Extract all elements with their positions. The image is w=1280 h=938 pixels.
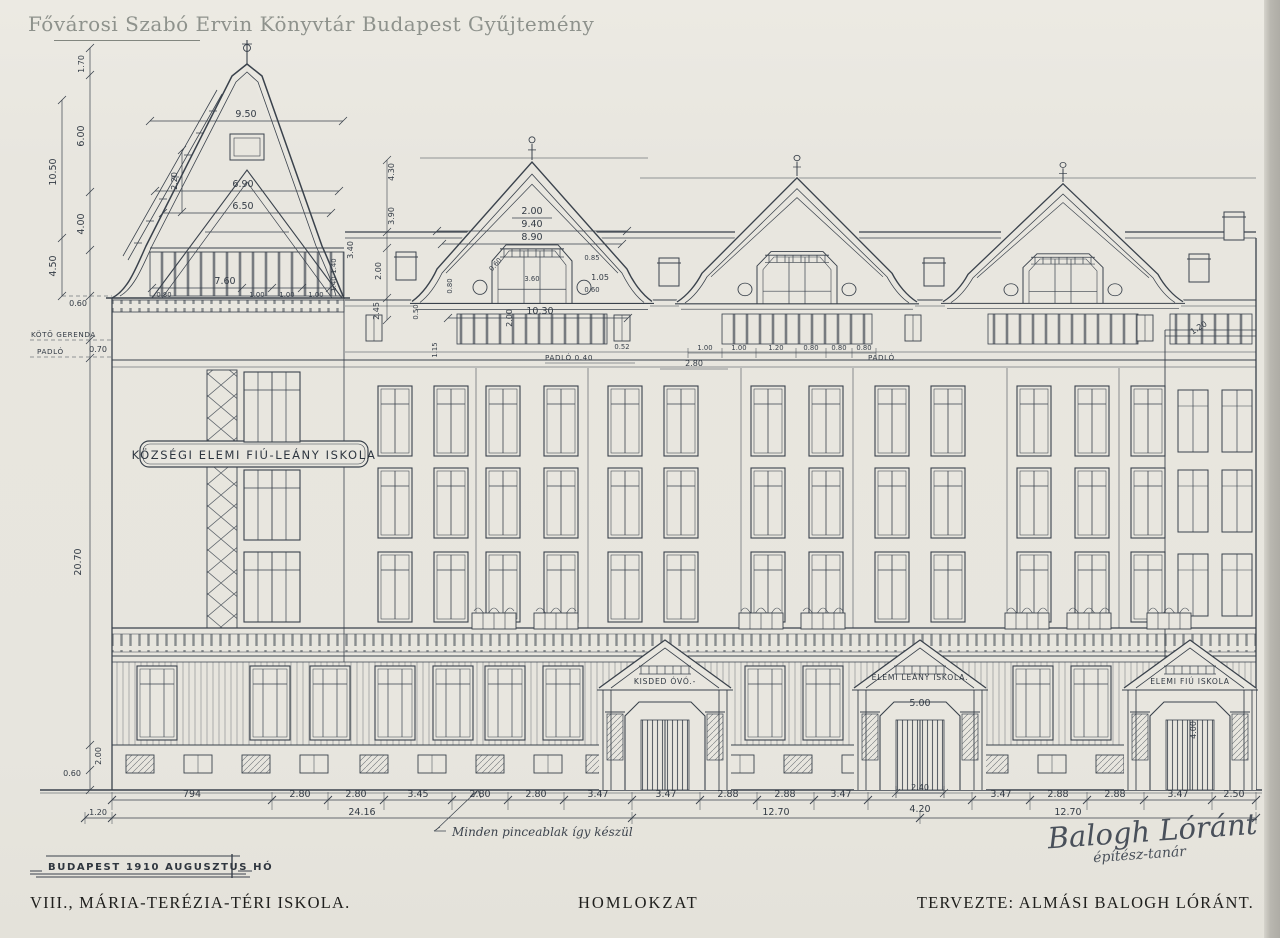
entrance-height-right: 4.00	[1189, 721, 1198, 739]
dim-tower-s2: 1.00	[249, 291, 264, 299]
entrance-label-center: ELEMI LEÁNY ISKOLA.	[872, 673, 969, 682]
dim-left-a: 1.70	[77, 55, 86, 73]
upper-windows	[244, 372, 1252, 622]
dim-mid-e: 0.50	[412, 304, 420, 319]
dim-left-j: 0.60	[63, 769, 81, 778]
caption-architect: TERVEZTE: ALMÁSI BALOGH LÓRÁNT.	[917, 893, 1254, 913]
dim-gable-j: 2.00	[505, 309, 514, 327]
basement-note: Minden pinceablak így készül	[451, 825, 633, 839]
handwritten-annotations: Minden pinceablak így készül BUDAPEST 19…	[30, 825, 633, 878]
dim-gable-d: 0.85	[584, 254, 599, 262]
caption-view-name: HOMLOKZAT	[578, 893, 699, 913]
dim-left-b: 6.00	[76, 125, 87, 146]
date-stamp-text: BUDAPEST 1910 AUGUSZTUS HÓ	[48, 860, 273, 873]
dim-mid-c: 2.00	[374, 262, 383, 280]
dim-mid-d: 2.45	[372, 302, 381, 320]
dim-tower-r2b: 1.40	[330, 276, 338, 291]
dim-left-e: 4.50	[48, 255, 59, 276]
dim-bottom-2: 2.80	[345, 789, 366, 800]
dim-bottom-1: 2.80	[289, 789, 310, 800]
dim-bottom-8: 2.88	[717, 789, 738, 800]
dim-left-h: 20.70	[73, 548, 84, 575]
dim-gable-l: 1.15	[431, 342, 439, 357]
dim-bottom-7: 3.47	[655, 789, 676, 800]
caption-building-name: VIII., MÁRIA-TERÉZIA-TÉRI ISKOLA.	[30, 893, 351, 913]
dim-bottom-9: 2.88	[774, 789, 795, 800]
elevation-drawing: KÖZSÉGI ELEMI FIÚ-LEÁNY ISKOLA KISDED ÓV…	[0, 0, 1280, 938]
scanned-drawing-sheet: Fővárosi Szabó Ervin Könyvtár Budapest G…	[0, 0, 1280, 938]
dim-attic-e: 0.80	[831, 344, 846, 352]
floor-mark-center: PADLÓ 0.40	[545, 353, 593, 362]
tie-beam-label: KÖTŐ GERENDA	[31, 330, 96, 339]
scan-edge-shadow	[1264, 0, 1280, 938]
dim-left-g: 0.70	[89, 345, 107, 354]
dim-tower-g2: 6.50	[232, 201, 253, 212]
dim-bottom-6: 3.47	[587, 789, 608, 800]
entrance-label-right: ELEMI FIÚ ISKOLA	[1150, 677, 1230, 686]
dim-bottom-10: 3.47	[830, 789, 851, 800]
dim-gable-g: 3.60	[524, 275, 539, 283]
entrance-height-center: 5.00	[909, 698, 930, 709]
dim-gate-width: 2.40	[911, 783, 929, 792]
dim-bottom-15: 3.47	[1167, 789, 1188, 800]
dim-gable-f: 0.60	[584, 286, 599, 294]
dim-tower-v: 2.20	[170, 172, 179, 190]
dim-gable-k: 0.52	[614, 343, 629, 351]
dim-attic-f: 0.80	[856, 344, 871, 352]
dim-attic-a: 1.00	[697, 344, 712, 352]
dim-tower-s4: 1.00	[308, 291, 323, 299]
floor-label-left: PADLÓ	[37, 347, 64, 356]
dim-gable-h: 0.80	[446, 278, 454, 293]
dim-bottom-3: 3.45	[407, 789, 428, 800]
dim-gable-c: 8.90	[521, 232, 542, 243]
dim-tower-s1: 0.80	[156, 291, 171, 299]
dim-bottom-5: 2.80	[525, 789, 546, 800]
dim-total-3: 12.70	[1054, 807, 1081, 818]
dim-gable-b: 9.40	[521, 219, 542, 230]
dim-tower-s3: 1.00	[279, 291, 294, 299]
dim-mid-a: 4.30	[387, 163, 396, 181]
dim-bottom-14: 2.88	[1104, 789, 1125, 800]
dim-bottom-4: 2.80	[469, 789, 490, 800]
dim-bottom-0: 794	[183, 789, 201, 800]
floor-label-right: PADLÓ	[868, 353, 895, 362]
dim-left-d: 10.50	[48, 158, 59, 185]
zigzag-pilaster	[207, 370, 237, 628]
entrances: KISDED ÓVÓ.- ELEMI LEÁNY ISKOLA. ELEMI F…	[597, 640, 1258, 790]
dim-tower-w: 9.50	[235, 109, 256, 120]
corner-tower	[106, 40, 350, 312]
dim-attic-b: 1.00	[731, 344, 746, 352]
dim-bottom-11: 4.20	[909, 804, 930, 815]
dim-attic-g: 2.80	[685, 359, 703, 368]
dim-attic-d: 0.80	[803, 344, 818, 352]
dim-gable-a: 2.00	[521, 206, 542, 217]
dim-left-f: 0.60	[69, 299, 87, 308]
attic-colonnade-bands	[457, 314, 1252, 344]
dim-gable-i: 10.30	[526, 306, 553, 317]
dim-total-0: 1.20	[89, 808, 107, 817]
dim-total-2: 12.70	[762, 807, 789, 818]
banner-text: KÖZSÉGI ELEMI FIÚ-LEÁNY ISKOLA	[132, 446, 377, 462]
dim-left-i: 2.00	[94, 747, 103, 765]
dim-attic-c: 1.20	[768, 344, 783, 352]
dim-tower-g1: 6.90	[232, 179, 253, 190]
dim-left-c: 4.00	[76, 213, 87, 234]
dim-bottom-13: 2.88	[1047, 789, 1068, 800]
gable-4	[941, 162, 1185, 308]
dim-tower-base: 7.60	[214, 276, 235, 287]
dim-total-1: 24.16	[348, 807, 375, 818]
dim-bottom-12: 3.47	[990, 789, 1011, 800]
entrance-label-left: KISDED ÓVÓ.-	[634, 677, 696, 686]
dim-tower-r: 3.40	[346, 241, 355, 259]
dim-bottom-16: 2.50	[1223, 789, 1244, 800]
dim-gable-e: 1.05	[591, 273, 609, 282]
dim-tower-r2: 1.40	[330, 258, 338, 273]
dim-mid-b: 3.90	[387, 207, 396, 225]
